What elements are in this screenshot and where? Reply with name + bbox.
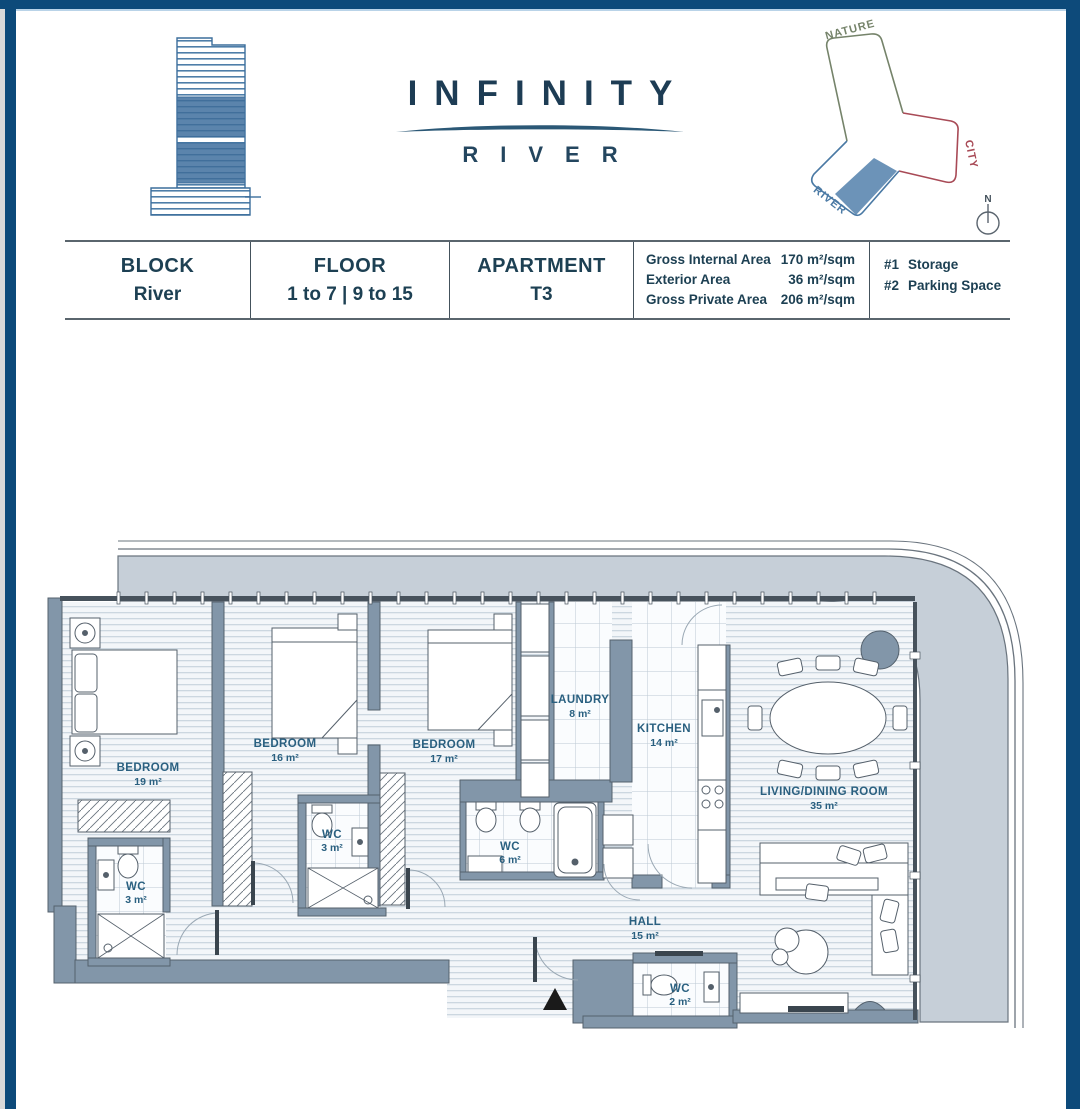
room-label-laundry: LAUNDRY bbox=[551, 694, 610, 706]
compass-n-label: N bbox=[984, 194, 991, 205]
room-area-bedroom-17: 17 m² bbox=[430, 753, 458, 765]
tv-console bbox=[740, 993, 848, 1013]
apartment-label: APARTMENT bbox=[477, 255, 606, 278]
room-label-wc2: WC bbox=[670, 983, 690, 995]
room-label-wc3-mid: WC bbox=[322, 829, 342, 841]
area-value: 36 m²/sqm bbox=[788, 270, 855, 290]
extras-cell: #1 Storage #2 Parking Space bbox=[870, 242, 1009, 318]
bed-bedroom-17 bbox=[428, 614, 512, 746]
room-label-wc3-left: WC bbox=[126, 881, 146, 893]
area-row: Gross Private Area 206 m²/sqm bbox=[646, 290, 855, 310]
room-label-living: LIVING/DINING ROOM bbox=[760, 786, 888, 798]
north-compass-icon: N bbox=[977, 194, 999, 234]
block-value: River bbox=[134, 284, 182, 306]
city-label: CITY bbox=[962, 139, 980, 170]
brand-swoosh-icon bbox=[390, 122, 690, 136]
brand-block: INFINITY RIVER bbox=[330, 74, 750, 168]
room-label-wc6: WC bbox=[500, 841, 520, 853]
extra-row: #2 Parking Space bbox=[884, 275, 1005, 296]
area-value: 170 m²/sqm bbox=[781, 250, 855, 270]
extra-num: #1 bbox=[884, 254, 899, 275]
room-area-bedroom-16: 16 m² bbox=[271, 752, 299, 764]
laundry-cabinets bbox=[521, 604, 549, 797]
nature-arm-outline bbox=[827, 34, 903, 141]
room-area-bedroom-19: 19 m² bbox=[134, 776, 162, 788]
extra-label: Storage bbox=[908, 254, 958, 275]
room-area-wc2: 2 m² bbox=[669, 996, 691, 1008]
frame-top-accent bbox=[16, 9, 1066, 11]
room-area-kitchen: 14 m² bbox=[650, 737, 678, 749]
brand-title: INFINITY bbox=[330, 74, 750, 114]
extra-label: Parking Space bbox=[908, 275, 1001, 296]
area-row: Exterior Area 36 m²/sqm bbox=[646, 270, 855, 290]
room-area-wc3-mid: 3 m² bbox=[321, 842, 343, 854]
extra-num: #2 bbox=[884, 275, 899, 296]
room-label-kitchen: KITCHEN bbox=[637, 723, 691, 735]
area-label: Gross Internal Area bbox=[646, 250, 771, 270]
apartment-value: T3 bbox=[530, 284, 552, 306]
floor-plan: BEDROOM 19 m² BEDROOM 16 m² BEDROOM 17 m… bbox=[0, 528, 1080, 1088]
room-area-laundry: 8 m² bbox=[569, 708, 591, 720]
nature-label: NATURE bbox=[824, 18, 876, 42]
area-value: 206 m²/sqm bbox=[781, 290, 855, 310]
floor-cell: FLOOR 1 to 7 | 9 to 15 bbox=[251, 242, 450, 318]
room-label-bedroom-16: BEDROOM bbox=[254, 738, 317, 750]
block-cell: BLOCK River bbox=[65, 242, 251, 318]
area-label: Gross Private Area bbox=[646, 290, 767, 310]
unit-info-table: BLOCK River FLOOR 1 to 7 | 9 to 15 APART… bbox=[65, 240, 1010, 320]
area-row: Gross Internal Area 170 m²/sqm bbox=[646, 250, 855, 270]
room-label-hall: HALL bbox=[629, 916, 661, 928]
room-area-living: 35 m² bbox=[810, 800, 838, 812]
areas-cell: Gross Internal Area 170 m²/sqm Exterior … bbox=[634, 242, 870, 318]
room-label-bedroom-17: BEDROOM bbox=[413, 739, 476, 751]
building-logo-icon bbox=[148, 34, 263, 230]
block-label: BLOCK bbox=[121, 255, 195, 278]
floor-label: FLOOR bbox=[314, 255, 387, 278]
room-area-wc6: 6 m² bbox=[499, 854, 521, 866]
room-label-bedroom-19: BEDROOM bbox=[117, 762, 180, 774]
brand-subtitle: RIVER bbox=[330, 142, 750, 168]
area-label: Exterior Area bbox=[646, 270, 730, 290]
room-area-wc3-left: 3 m² bbox=[125, 894, 147, 906]
orientation-diagram: NATURE CITY RIVER N bbox=[790, 18, 1050, 238]
floor-value: 1 to 7 | 9 to 15 bbox=[287, 284, 413, 306]
apartment-cell: APARTMENT T3 bbox=[450, 242, 634, 318]
room-area-hall: 15 m² bbox=[631, 930, 659, 942]
city-arm-outline bbox=[899, 113, 958, 182]
frame-top bbox=[0, 0, 1080, 9]
extra-row: #1 Storage bbox=[884, 254, 1005, 275]
bed-bedroom-16 bbox=[272, 614, 357, 754]
brochure-page: INFINITY RIVER NATURE CITY RIVER N BLOCK… bbox=[0, 0, 1080, 1109]
